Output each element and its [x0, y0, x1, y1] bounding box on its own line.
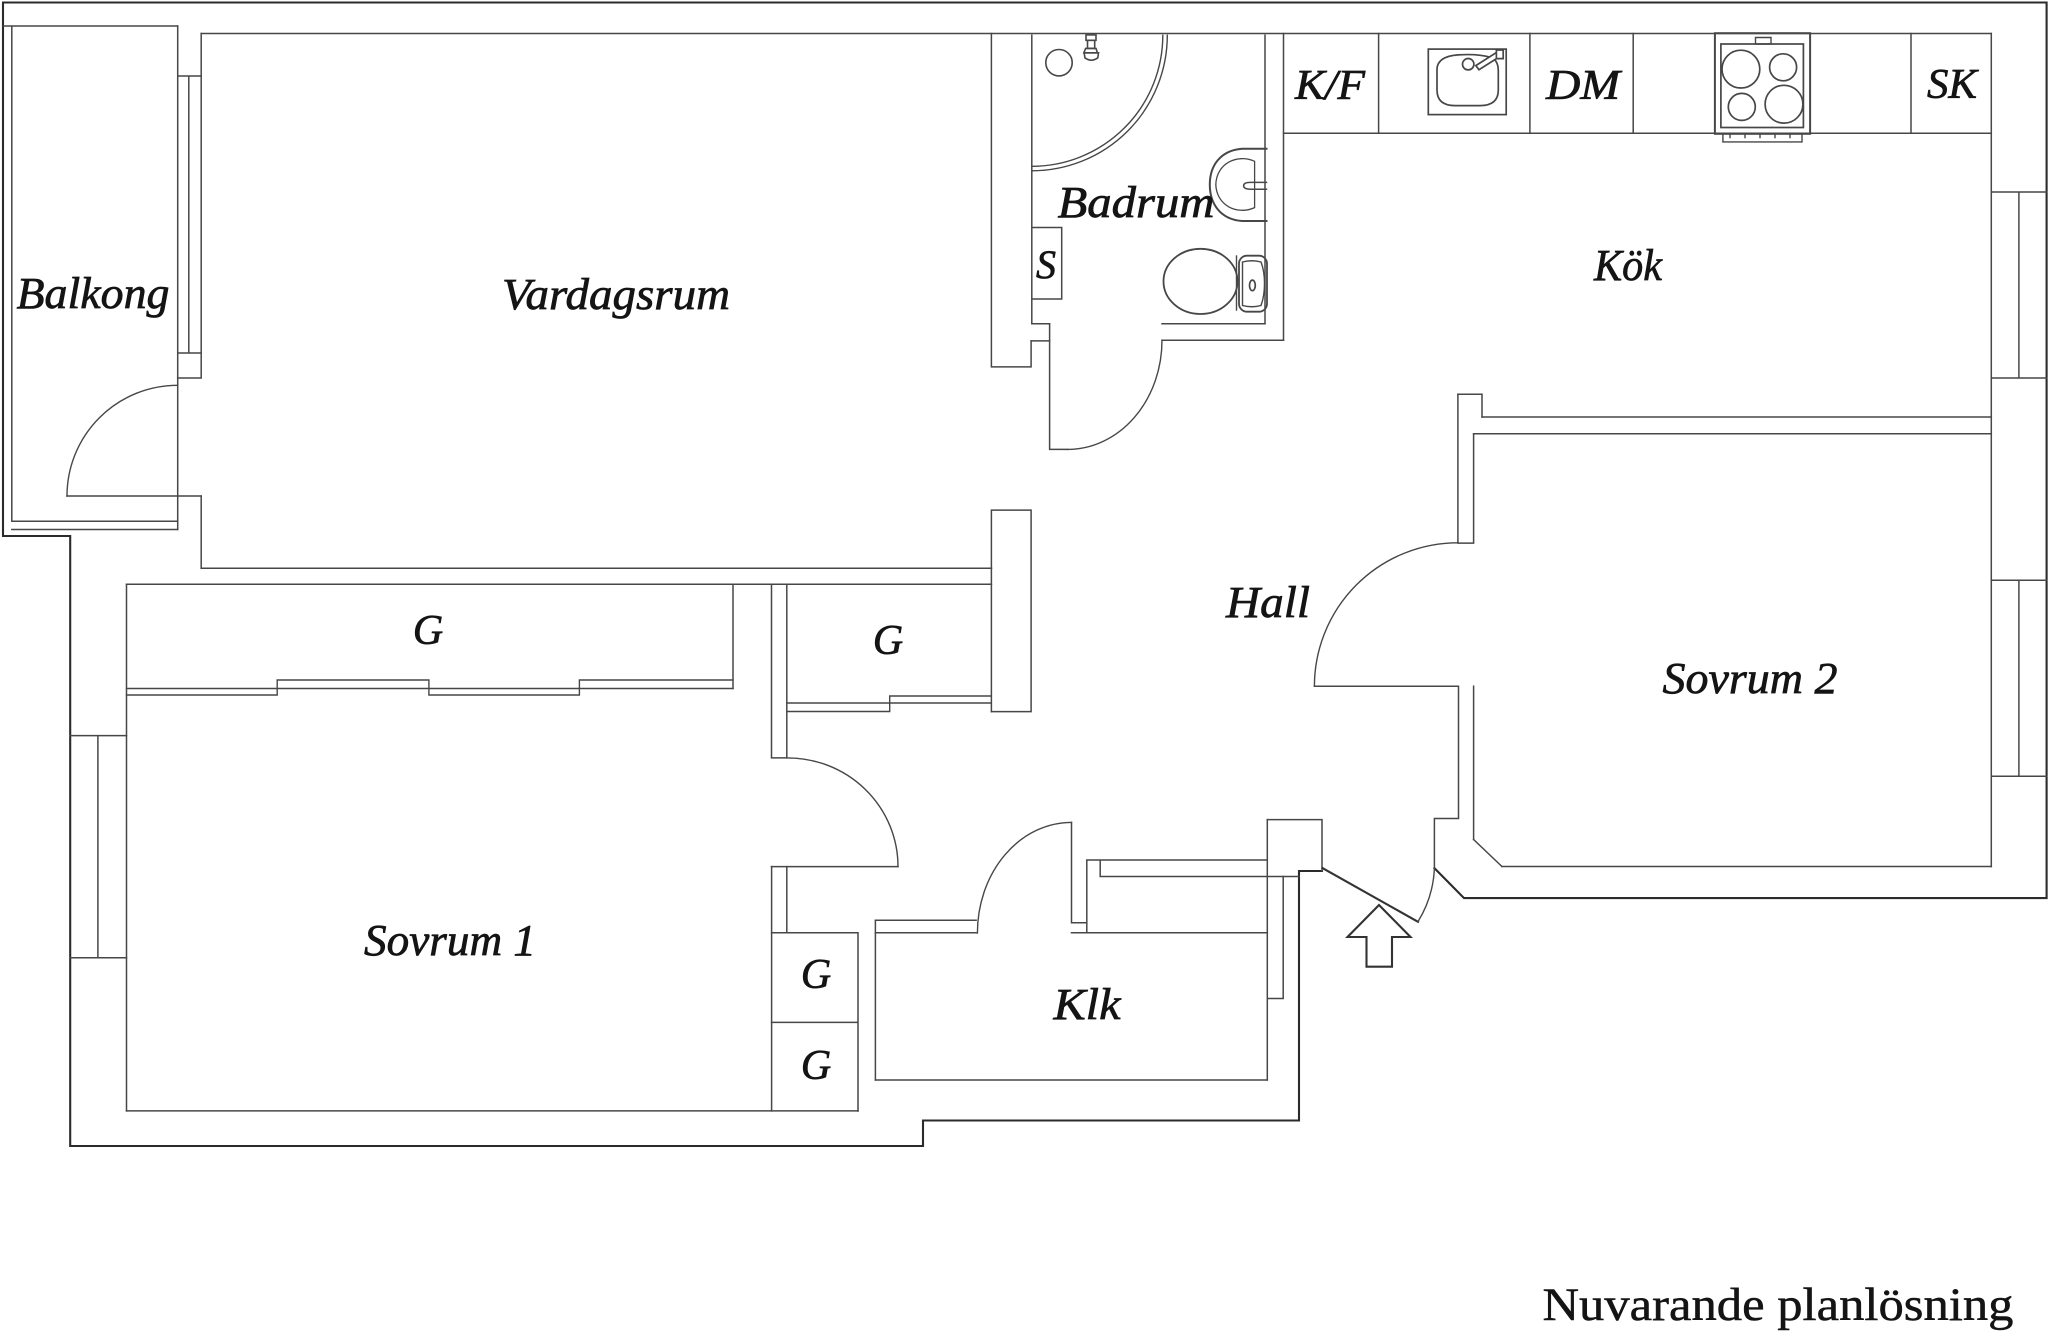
svg-text:Kök: Kök: [1593, 241, 1663, 290]
svg-text:Badrum: Badrum: [1058, 178, 1215, 227]
svg-text:Vardagsrum: Vardagsrum: [502, 270, 730, 319]
svg-text:Nuvarande planlösning: Nuvarande planlösning: [1543, 1279, 2014, 1331]
svg-text:G: G: [801, 1043, 831, 1089]
svg-text:Klk: Klk: [1052, 980, 1122, 1029]
svg-text:Balkong: Balkong: [17, 269, 170, 318]
svg-text:S: S: [1036, 242, 1056, 287]
svg-text:Sovrum 2: Sovrum 2: [1663, 654, 1838, 703]
svg-text:G: G: [413, 608, 443, 654]
svg-text:SK: SK: [1927, 62, 1979, 108]
svg-text:DM: DM: [1545, 63, 1622, 109]
svg-text:G: G: [801, 952, 831, 998]
svg-text:G: G: [873, 618, 903, 664]
svg-text:K/F: K/F: [1294, 63, 1365, 109]
svg-text:Hall: Hall: [1225, 578, 1310, 627]
svg-text:Sovrum 1: Sovrum 1: [364, 916, 536, 965]
